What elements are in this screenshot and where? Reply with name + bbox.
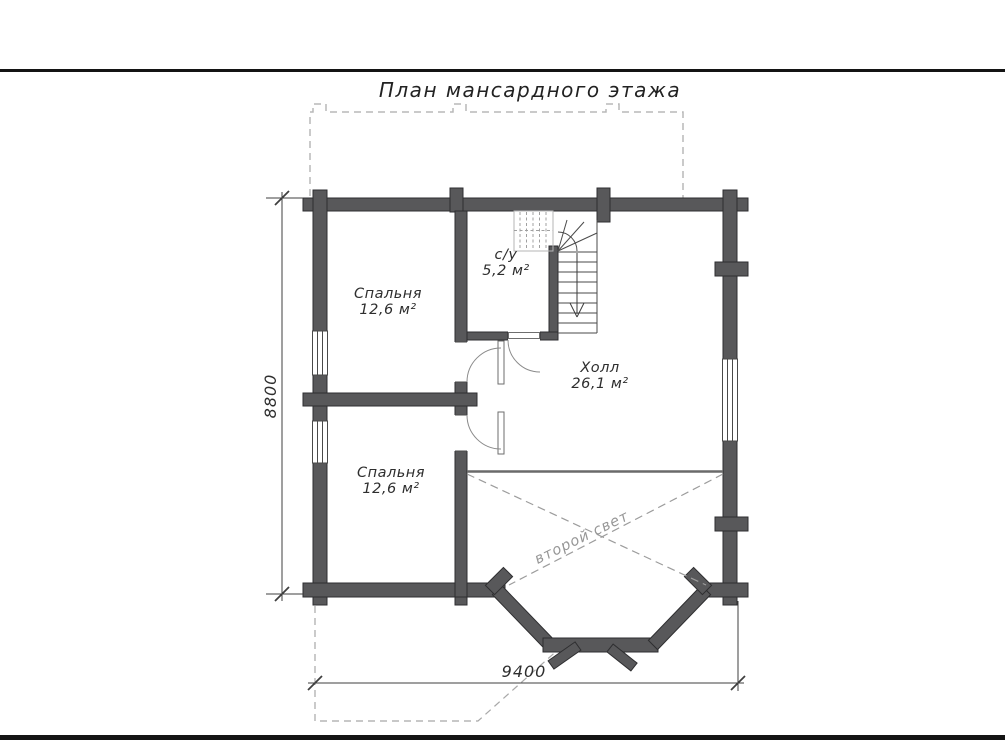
- lower-floor-outline: [310, 104, 683, 721]
- room-name: с/у: [456, 247, 556, 263]
- door-swing-bedroom2: [467, 415, 501, 449]
- log-end-top-interior: [450, 188, 463, 212]
- bay-wall-right: [648, 585, 710, 649]
- room-label-bedroom-2: Спальня 12,6 м²: [334, 465, 448, 497]
- room-name: Холл: [540, 360, 660, 376]
- log-end-top-stair: [597, 188, 610, 222]
- room-name: Спальня: [331, 286, 445, 302]
- sheet-border-bottom: [0, 735, 1005, 740]
- door-leaf-bathroom: [509, 333, 540, 339]
- floor-plan-drawing: [0, 0, 1005, 754]
- stair-winders: [558, 220, 597, 251]
- roof-outline-path: [310, 104, 683, 199]
- room-area: 26,1 м²: [540, 376, 660, 392]
- stair-upper-flight-dashed: [514, 211, 553, 251]
- wall-interior-lower: [455, 451, 467, 597]
- wall-bathroom-bottom-a: [467, 332, 508, 340]
- room-label-bedroom-1: Спальня 12,6 м²: [331, 286, 445, 318]
- log-cross-right-upper: [715, 262, 748, 276]
- window-hall-right: [723, 359, 738, 441]
- door-leaf-bedroom1: [498, 341, 504, 384]
- wall-bottom-left: [303, 583, 505, 597]
- drawing-sheet: План мансардного этажа Спальня 12,6 м² с…: [0, 0, 1005, 754]
- dimension-text-9400: 9400: [489, 662, 559, 681]
- bay-wall-bottom: [543, 638, 658, 652]
- stair-direction-arrow: [570, 253, 584, 317]
- door-opening-bedroom2: [454, 415, 468, 451]
- dimension-text-8800: 8800: [261, 361, 277, 431]
- room-label-bathroom: с/у 5,2 м²: [456, 247, 556, 279]
- log-end-bottom-interior: [455, 597, 467, 605]
- wall-bathroom-bottom-b: [540, 332, 558, 340]
- wall-middle-bedrooms: [303, 393, 477, 406]
- door-opening-bedroom1: [454, 342, 468, 382]
- room-label-hall: Холл 26,1 м²: [540, 360, 660, 392]
- log-cross-right-lower: [715, 517, 748, 531]
- wall-top: [303, 198, 748, 211]
- room-area: 5,2 м²: [456, 263, 556, 279]
- window-bedroom2-left: [313, 421, 328, 463]
- page-title: План мансардного этажа: [340, 78, 720, 102]
- door-leaf-bedroom2: [498, 412, 504, 454]
- window-bedroom1-left: [313, 331, 328, 375]
- door-swing-bathroom: [508, 340, 540, 372]
- door-swing-bedroom1: [467, 348, 501, 382]
- room-name: Спальня: [334, 465, 448, 481]
- room-area: 12,6 м²: [331, 302, 445, 318]
- room-area: 12,6 м²: [334, 481, 448, 497]
